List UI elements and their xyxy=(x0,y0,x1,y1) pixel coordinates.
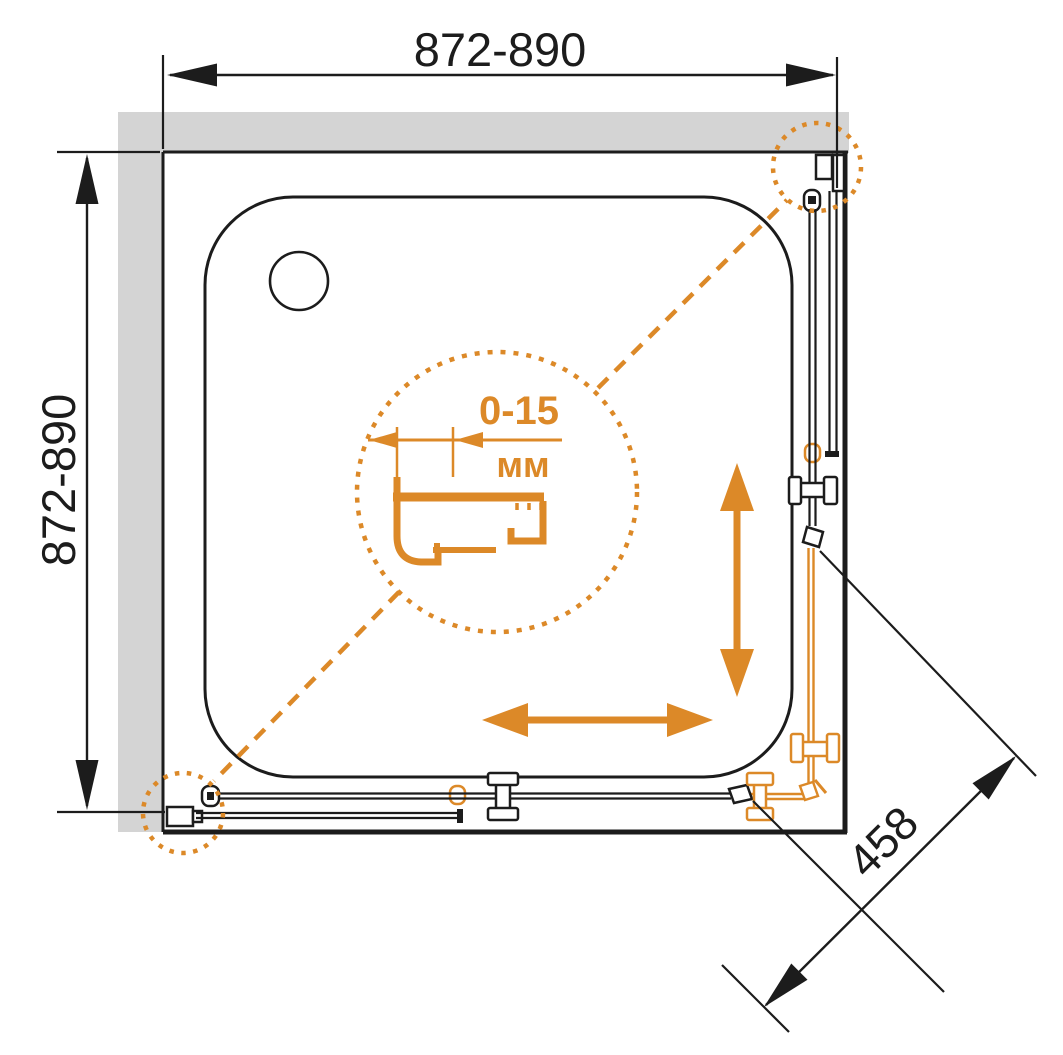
door-handle-bottom xyxy=(488,773,518,820)
detail-range-label: 0-15 xyxy=(479,389,559,433)
profile-teeth xyxy=(517,503,541,510)
door-edge-seal-right xyxy=(803,527,823,547)
slide-direction-arrow-horizontal xyxy=(482,703,713,737)
diagonal-label: 458 xyxy=(837,796,928,887)
top-wall xyxy=(118,112,849,153)
bottom-fixed-panel xyxy=(196,809,463,823)
technical-drawing-canvas: 872-890 872-890 458 0-15 мм xyxy=(0,0,1063,1055)
open-door-guide-top xyxy=(805,444,820,462)
open-door-guide-left xyxy=(450,786,465,804)
top-width-label: 872-890 xyxy=(414,23,587,76)
door-edge-seal-bottom xyxy=(729,785,752,803)
bottom-fixed-panel-end xyxy=(457,809,463,823)
right-fixed-panel xyxy=(825,191,839,457)
left-wall xyxy=(118,112,164,832)
profile-clip xyxy=(433,543,496,551)
door-handle-open-right xyxy=(791,734,839,762)
detail-arrow-right xyxy=(455,432,483,448)
left-height-label: 872-890 xyxy=(32,394,85,567)
right-fixed-panel-end xyxy=(825,451,839,457)
drain-icon xyxy=(270,252,328,310)
diagonal-extension-upper xyxy=(820,551,1036,776)
shower-enclosure-plan-svg: 872-890 872-890 458 0-15 мм xyxy=(0,0,1063,1055)
detail-unit-label: мм xyxy=(496,444,549,485)
slide-direction-arrow-vertical xyxy=(720,463,754,697)
diagonal-extension-lower xyxy=(722,965,789,1032)
open-door-corner-seal xyxy=(800,782,818,800)
profile-outer-leg xyxy=(397,477,438,562)
detail-connector-top-right xyxy=(598,200,787,388)
detail-connector-bottom-left xyxy=(214,592,399,781)
bottom-sliding-door xyxy=(202,785,752,806)
detail-arrow-left xyxy=(369,432,397,448)
wall-profile-top-right xyxy=(816,155,844,191)
dimension-diagonal xyxy=(722,551,1036,1032)
wall-profile-bottom-left xyxy=(167,807,202,826)
door-handle-right xyxy=(789,477,837,504)
